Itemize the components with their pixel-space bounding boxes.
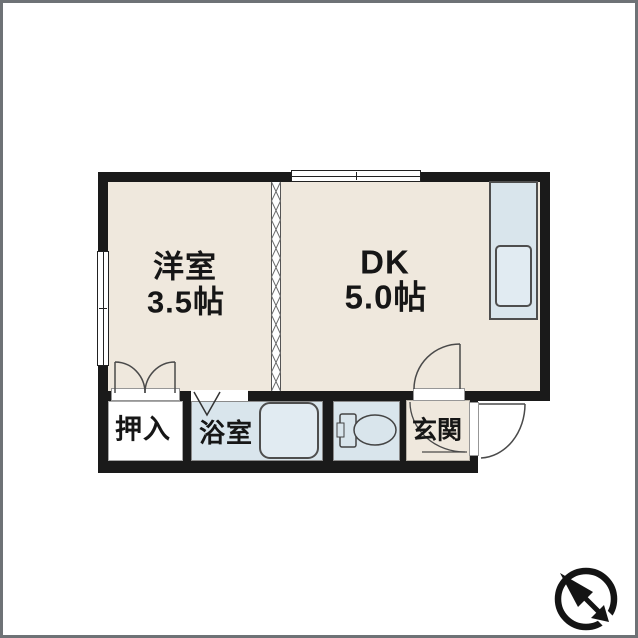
window-left bbox=[97, 251, 109, 366]
floorplan-frame: 洋室 3.5帖 DK 5.0帖 押入 浴室 玄関 bbox=[0, 0, 638, 638]
compass-north-icon bbox=[551, 565, 623, 637]
opening-dk-entrance bbox=[413, 388, 465, 401]
bathtub bbox=[259, 402, 319, 459]
wall-bottom bbox=[98, 461, 478, 473]
opening-front-door bbox=[469, 402, 479, 456]
window-left-tick bbox=[99, 308, 107, 309]
room-entrance-label: 玄関 bbox=[412, 419, 462, 444]
window-top bbox=[291, 170, 421, 182]
front-door-swing bbox=[479, 404, 525, 458]
room-toilet bbox=[333, 401, 400, 461]
wall-bathroom-toilet bbox=[323, 401, 333, 461]
kitchen-sink bbox=[495, 245, 532, 307]
opening-bathroom bbox=[191, 390, 248, 401]
room-bathroom-label: 浴室 bbox=[199, 420, 253, 446]
room-closet-label: 押入 bbox=[115, 417, 171, 444]
wall-closet-bathroom bbox=[183, 401, 191, 461]
room-dk-label: DK bbox=[360, 246, 410, 279]
window-top-tick bbox=[356, 172, 357, 180]
wall-right bbox=[540, 172, 550, 401]
opening-closet bbox=[111, 388, 180, 401]
accordion-partition bbox=[272, 182, 281, 391]
room-dk-size: 5.0帖 bbox=[345, 281, 428, 314]
room-western-label: 洋室 bbox=[153, 252, 217, 283]
room-western-size: 3.5帖 bbox=[147, 287, 225, 318]
